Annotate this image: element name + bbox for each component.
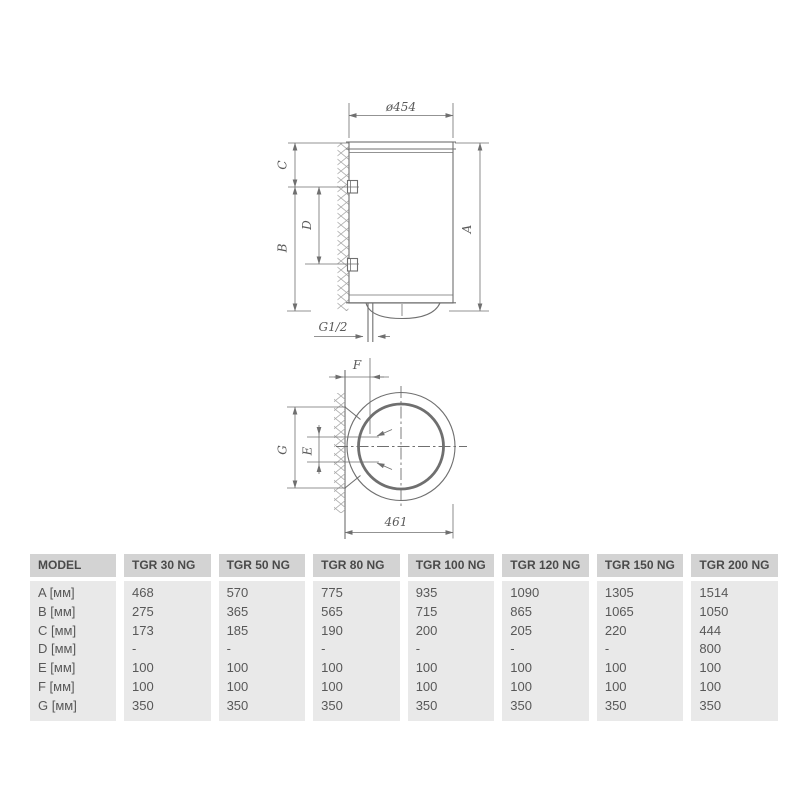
table-column: TGR 200 NG15141050444800100100350 xyxy=(691,554,778,721)
row-label: G [мм] xyxy=(30,697,116,716)
row-label: A [мм] xyxy=(30,584,116,603)
lower-bracket xyxy=(348,259,358,272)
table-cell: 100 xyxy=(408,678,495,697)
table-header-cell: MODEL xyxy=(30,554,116,577)
table-header-cell: TGR 200 NG xyxy=(691,554,778,577)
bottom-view-drawing: F G E 461 xyxy=(276,358,468,539)
dim-label-a: A xyxy=(460,224,474,234)
table-cell: 220 xyxy=(597,622,684,641)
table-header-cell: TGR 50 NG xyxy=(219,554,306,577)
table-column-body: 468275173-100100350 xyxy=(124,581,211,721)
table-cell: 350 xyxy=(408,697,495,716)
table-cell: 200 xyxy=(408,622,495,641)
row-label: E [мм] xyxy=(30,659,116,678)
table-cell: 190 xyxy=(313,622,400,641)
table-cell: 100 xyxy=(597,659,684,678)
wall-hatch-front xyxy=(338,143,349,311)
table-column-body: 775565190-100100350 xyxy=(313,581,400,721)
table-column-body: 570365185-100100350 xyxy=(219,581,306,721)
table-cell: 570 xyxy=(219,584,306,603)
table-cell: 935 xyxy=(408,584,495,603)
table-cell: 100 xyxy=(313,659,400,678)
heater-bottom-dome xyxy=(366,303,440,319)
table-cell: 715 xyxy=(408,603,495,622)
row-label: B [мм] xyxy=(30,603,116,622)
table-cell: 100 xyxy=(691,659,778,678)
table-cell: 800 xyxy=(691,640,778,659)
spec-table: MODELA [мм]B [мм]C [мм]D [мм]E [мм]F [мм… xyxy=(30,554,778,721)
table-cell: 350 xyxy=(691,697,778,716)
table-column: MODELA [мм]B [мм]C [мм]D [мм]E [мм]F [мм… xyxy=(30,554,116,721)
technical-drawing: ø454 A C B D G1/2 xyxy=(0,0,800,550)
table-column-body: 935715200-100100350 xyxy=(408,581,495,721)
table-cell: - xyxy=(124,640,211,659)
row-label: C [мм] xyxy=(30,622,116,641)
table-cell: 350 xyxy=(597,697,684,716)
table-cell: 205 xyxy=(502,622,589,641)
table-header-cell: TGR 80 NG xyxy=(313,554,400,577)
table-cell: 173 xyxy=(124,622,211,641)
table-column-body: 15141050444800100100350 xyxy=(691,581,778,721)
table-cell: - xyxy=(502,640,589,659)
table-cell: 1050 xyxy=(691,603,778,622)
table-cell: 100 xyxy=(597,678,684,697)
table-cell: 100 xyxy=(502,659,589,678)
table-cell: 100 xyxy=(408,659,495,678)
dim-label-f: F xyxy=(352,358,362,372)
table-cell: 100 xyxy=(219,659,306,678)
dim-label-b: B xyxy=(276,243,290,253)
table-column-body: 1090865205-100100350 xyxy=(502,581,589,721)
row-label: F [мм] xyxy=(30,678,116,697)
table-cell: 185 xyxy=(219,622,306,641)
table-cell: - xyxy=(313,640,400,659)
table-cell: 444 xyxy=(691,622,778,641)
table-cell: 865 xyxy=(502,603,589,622)
table-cell: 100 xyxy=(691,678,778,697)
dim-label-diameter: ø454 xyxy=(385,100,416,114)
table-cell: 350 xyxy=(219,697,306,716)
table-cell: 100 xyxy=(502,678,589,697)
table-column-body: A [мм]B [мм]C [мм]D [мм]E [мм]F [мм]G [м… xyxy=(30,581,116,721)
heater-body xyxy=(349,142,453,303)
table-cell: 1090 xyxy=(502,584,589,603)
table-column: TGR 30 NG468275173-100100350 xyxy=(124,554,211,721)
table-cell: 100 xyxy=(124,678,211,697)
table-column: TGR 80 NG775565190-100100350 xyxy=(313,554,400,721)
row-label: D [мм] xyxy=(30,640,116,659)
table-column-body: 13051065220-100100350 xyxy=(597,581,684,721)
table-header-cell: TGR 120 NG xyxy=(502,554,589,577)
table-header-cell: TGR 100 NG xyxy=(408,554,495,577)
table-cell: 100 xyxy=(313,678,400,697)
table-column: TGR 100 NG935715200-100100350 xyxy=(408,554,495,721)
dim-label-width: 461 xyxy=(384,515,408,529)
table-cell: 100 xyxy=(219,678,306,697)
table-column: TGR 50 NG570365185-100100350 xyxy=(219,554,306,721)
table-cell: - xyxy=(219,640,306,659)
table-cell: 100 xyxy=(124,659,211,678)
table-cell: 775 xyxy=(313,584,400,603)
table-cell: 1514 xyxy=(691,584,778,603)
table-cell: 350 xyxy=(313,697,400,716)
table-cell: 365 xyxy=(219,603,306,622)
table-column: TGR 120 NG1090865205-100100350 xyxy=(502,554,589,721)
table-column: TGR 150 NG13051065220-100100350 xyxy=(597,554,684,721)
table-cell: 1065 xyxy=(597,603,684,622)
front-view-drawing: ø454 A C B D G1/2 xyxy=(276,100,490,342)
dim-label-g: G xyxy=(276,445,290,455)
dim-label-d: D xyxy=(300,220,314,231)
table-cell: 1305 xyxy=(597,584,684,603)
table-header-cell: TGR 150 NG xyxy=(597,554,684,577)
table-cell: 468 xyxy=(124,584,211,603)
table-cell: - xyxy=(408,640,495,659)
table-cell: - xyxy=(597,640,684,659)
table-cell: 275 xyxy=(124,603,211,622)
wall-hatch-bottom xyxy=(334,393,345,513)
table-header-cell: TGR 30 NG xyxy=(124,554,211,577)
dim-label-thread: G1/2 xyxy=(319,320,348,334)
table-cell: 350 xyxy=(502,697,589,716)
table-cell: 350 xyxy=(124,697,211,716)
dim-label-e: E xyxy=(301,446,315,456)
spec-sheet-page: ø454 A C B D G1/2 xyxy=(0,0,800,800)
dim-label-c: C xyxy=(276,160,290,169)
table-cell: 565 xyxy=(313,603,400,622)
